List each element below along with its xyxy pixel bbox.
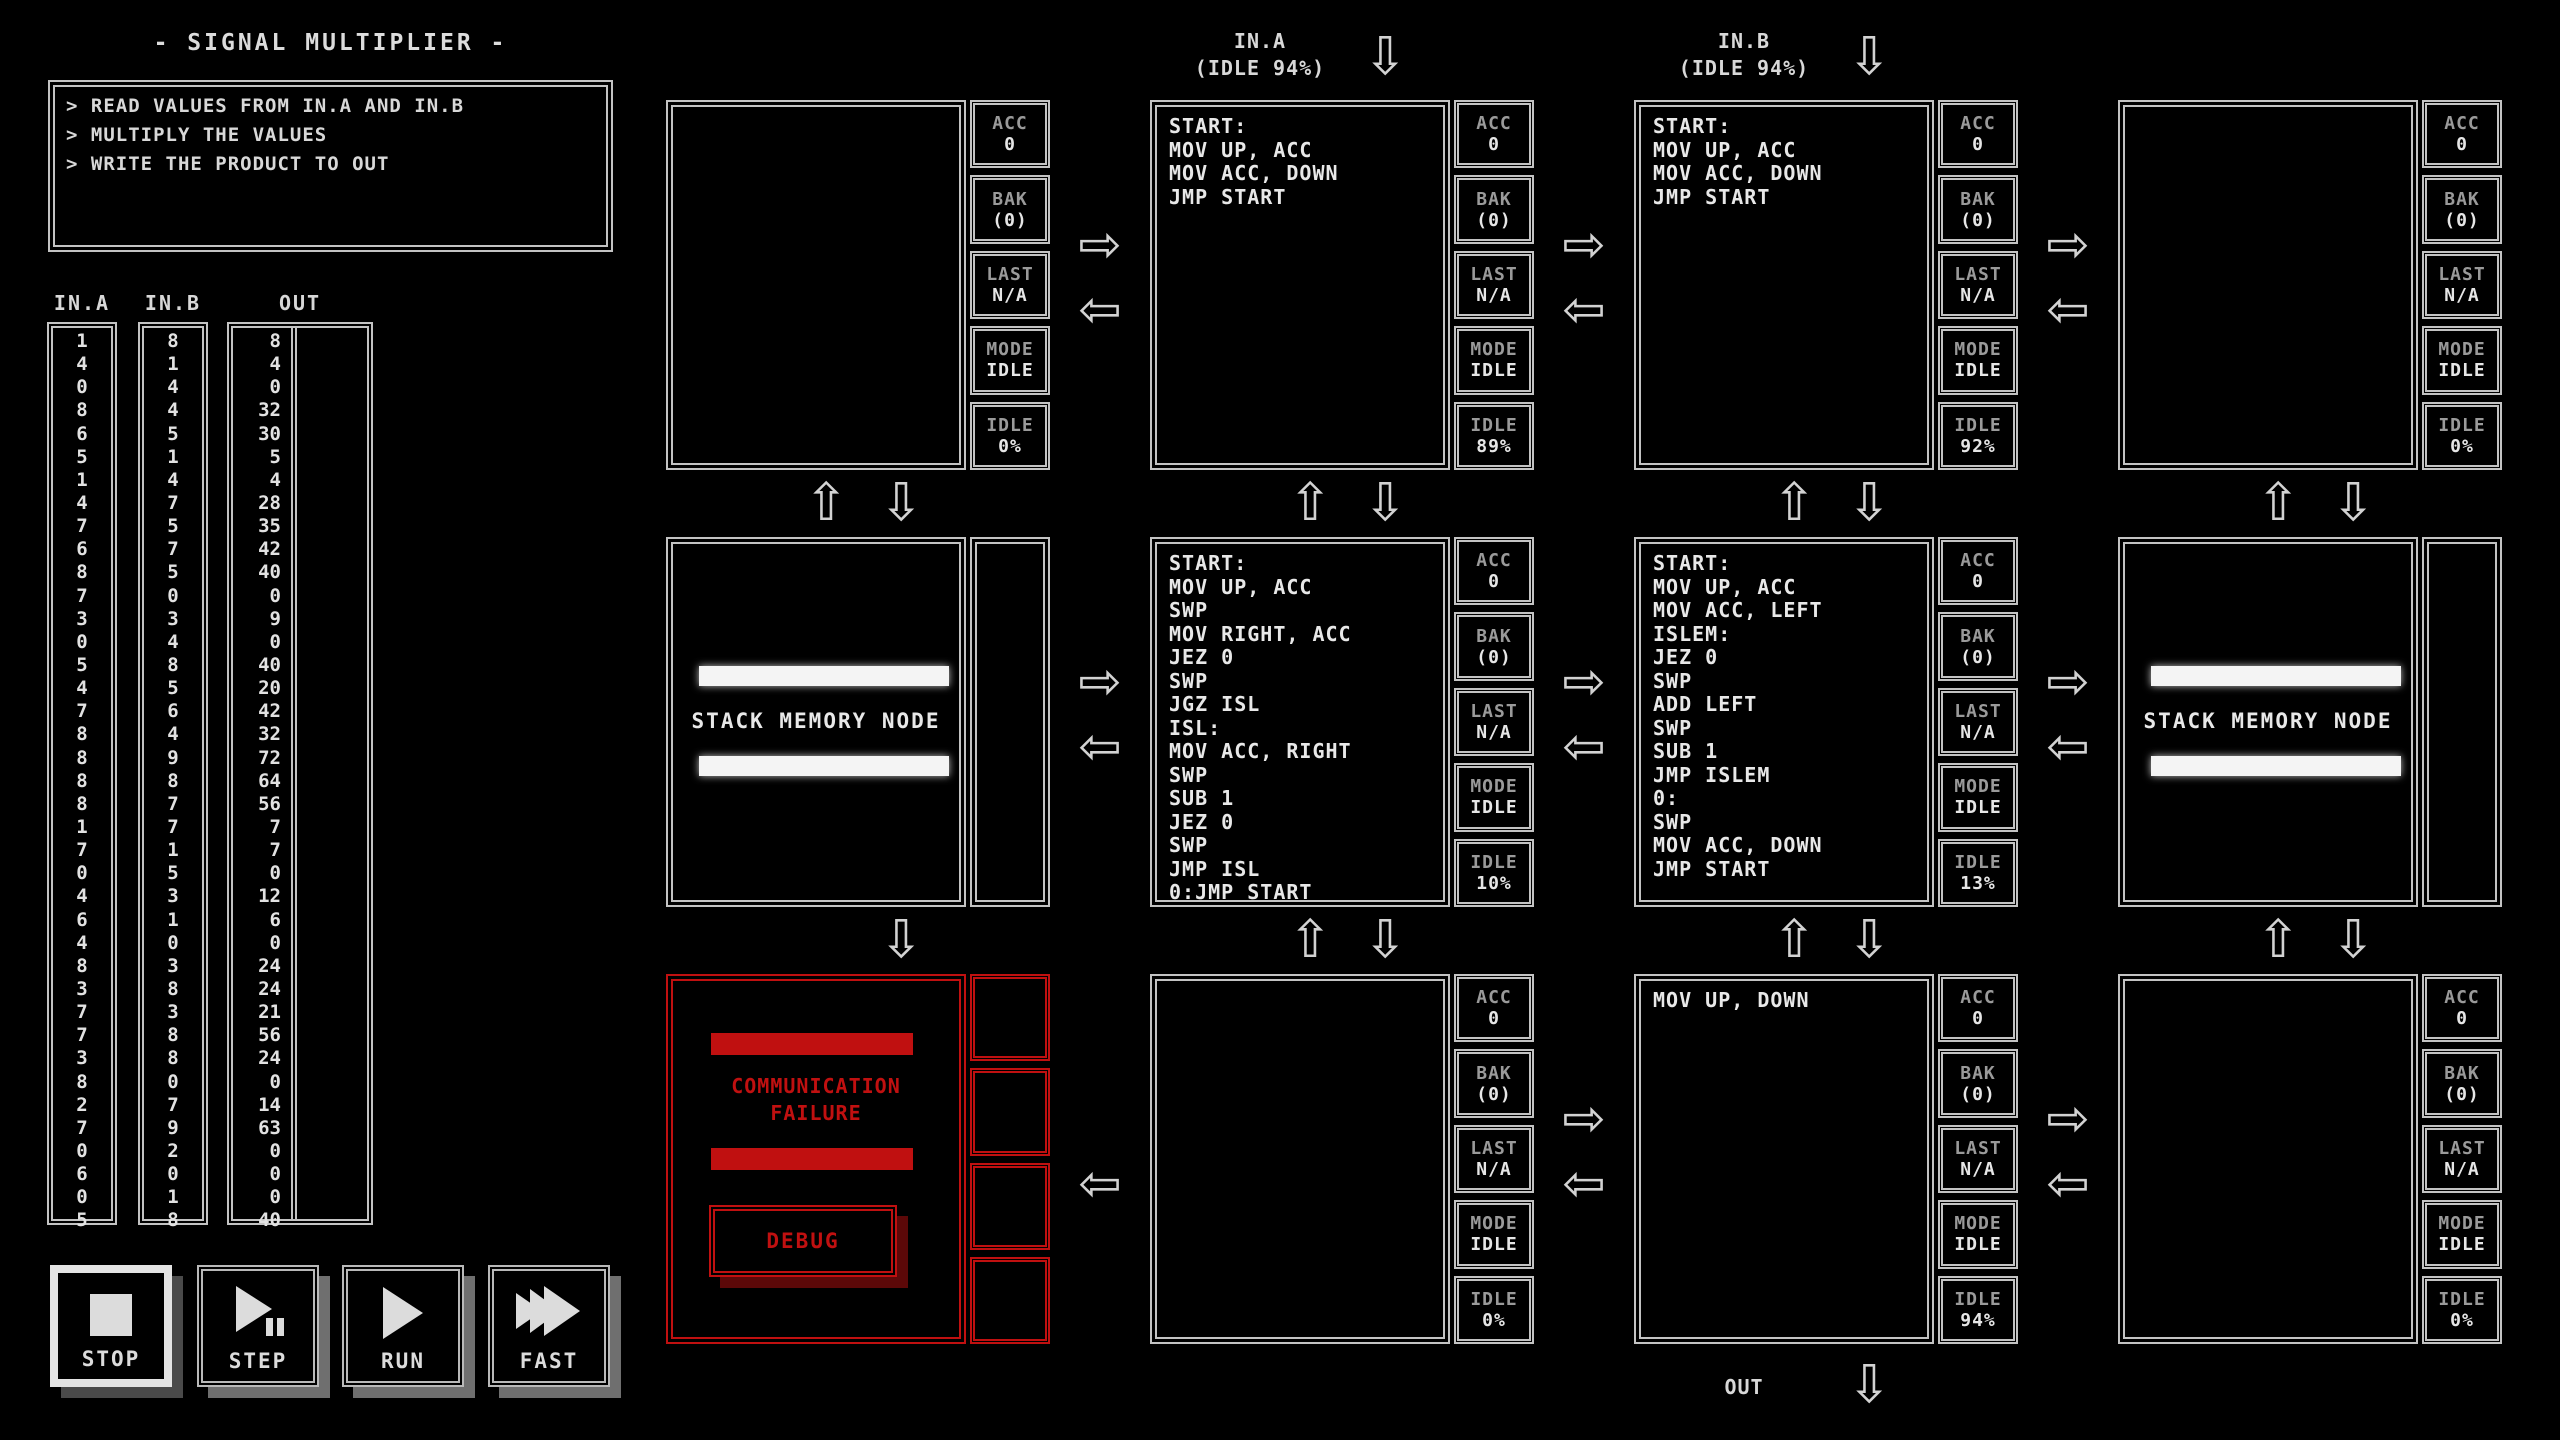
last-box: LASTN/A xyxy=(1454,1125,1534,1193)
bak-box: BAK(0) xyxy=(1454,1049,1534,1117)
node-r3c2: ACC0 BAK(0) LASTN/A MODEIDLE IDLE0% xyxy=(1150,974,1534,1344)
bak-box: BAK(0) xyxy=(2422,1049,2502,1117)
last-box: LASTN/A xyxy=(2422,251,2502,319)
acc-box: ACC0 xyxy=(1938,100,2018,168)
acc-box: ACC0 xyxy=(1454,537,1534,605)
bak-box: BAK(0) xyxy=(1938,175,2018,243)
arrow-down-icon: ⇩ xyxy=(879,914,923,966)
idle-box: IDLE10% xyxy=(1454,839,1534,907)
last-box: LASTN/A xyxy=(1938,688,2018,756)
failure-sidebar-box xyxy=(970,1068,1050,1155)
mode-box: MODEIDLE xyxy=(1938,763,2018,831)
idle-box: IDLE0% xyxy=(2422,402,2502,470)
mode-box: MODEIDLE xyxy=(1454,763,1534,831)
last-box: LASTN/A xyxy=(970,251,1050,319)
arrow-down-icon: ⇩ xyxy=(2331,914,2375,966)
mode-box: MODEIDLE xyxy=(2422,1200,2502,1268)
fast-button-label: FAST xyxy=(494,1349,604,1373)
arrow-down-icon: ⇩ xyxy=(1363,31,1407,83)
idle-box: IDLE94% xyxy=(1938,1276,2018,1344)
stack-memory-panel: STACK MEMORY NODE xyxy=(666,537,966,907)
in-a-values: 140865147687305478888170464837738270605 xyxy=(47,330,117,1232)
arrow-down-icon: ⇩ xyxy=(1847,1359,1891,1411)
last-box: LASTN/A xyxy=(2422,1125,2502,1193)
node-r1c2-code-editor[interactable]: START: MOV UP, ACC MOV ACC, DOWN JMP STA… xyxy=(1150,100,1450,470)
arrow-right-icon: ⇨ xyxy=(1078,219,1122,271)
node-r3c1-communication-failure: COMMUNICATION FAILURE DEBUG xyxy=(666,974,1050,1344)
node-r2c3-code-editor[interactable]: START: MOV UP, ACC MOV ACC, LEFT ISLEM: … xyxy=(1634,537,1934,907)
stop-button[interactable]: STOP xyxy=(50,1265,172,1387)
node-r3c3-code-editor[interactable]: MOV UP, DOWN xyxy=(1634,974,1934,1344)
bak-box: BAK(0) xyxy=(1938,612,2018,680)
arrow-down-icon: ⇩ xyxy=(1363,477,1407,529)
bak-box: BAK(0) xyxy=(1454,612,1534,680)
failure-message: COMMUNICATION FAILURE xyxy=(673,1073,959,1127)
acc-box: ACC0 xyxy=(970,100,1050,168)
failure-panel: COMMUNICATION FAILURE DEBUG xyxy=(666,974,966,1344)
node-r2c2-code-editor[interactable]: START: MOV UP, ACC SWP MOV RIGHT, ACC JE… xyxy=(1150,537,1450,907)
arrow-up-icon: ⇧ xyxy=(1772,477,1816,529)
arrow-left-icon: ⇦ xyxy=(1078,284,1122,336)
stack-memory-panel: STACK MEMORY NODE xyxy=(2118,537,2418,907)
acc-box: ACC0 xyxy=(2422,100,2502,168)
in-b-values: 814451475750348564987715310383880792018 xyxy=(138,330,208,1232)
bak-box: BAK(0) xyxy=(1454,175,1534,243)
arrow-right-icon: ⇨ xyxy=(2046,219,2090,271)
failure-sidebar-box xyxy=(970,1163,1050,1250)
last-box: LASTN/A xyxy=(1938,1125,2018,1193)
run-button[interactable]: RUN xyxy=(342,1265,464,1387)
node-r2c3: START: MOV UP, ACC MOV ACC, LEFT ISLEM: … xyxy=(1634,537,2018,907)
arrow-left-icon: ⇦ xyxy=(1562,1158,1606,1210)
debug-button[interactable]: DEBUG xyxy=(709,1205,897,1277)
out-expected-values: 8403230542835424009040204232726456770126… xyxy=(227,330,291,1232)
arrow-right-icon: ⇨ xyxy=(1562,1093,1606,1145)
node-r3c3: MOV UP, DOWN ACC0 BAK(0) LASTN/A MODEIDL… xyxy=(1634,974,2018,1344)
idle-box: IDLE92% xyxy=(1938,402,2018,470)
node-r1c4-code-editor[interactable] xyxy=(2118,100,2418,470)
bak-box: BAK(0) xyxy=(1938,1049,2018,1117)
stop-button-label: STOP xyxy=(58,1347,164,1371)
node-r1c1-code-editor[interactable] xyxy=(666,100,966,470)
arrow-down-icon: ⇩ xyxy=(879,477,923,529)
stack-memory-label: STACK MEMORY NODE xyxy=(673,710,959,734)
mode-box: MODEIDLE xyxy=(1938,326,2018,394)
node-r1c1: ACC0 BAK(0) LASTN/A MODEIDLE IDLE0% xyxy=(666,100,1050,470)
acc-box: ACC0 xyxy=(1454,974,1534,1042)
run-button-label: RUN xyxy=(348,1349,458,1373)
failure-sidebar-box xyxy=(970,974,1050,1061)
failure-bar xyxy=(711,1033,913,1055)
acc-box: ACC0 xyxy=(1938,974,2018,1042)
arrow-right-icon: ⇨ xyxy=(2046,656,2090,708)
last-box: LASTN/A xyxy=(1454,688,1534,756)
arrow-up-icon: ⇧ xyxy=(1288,914,1332,966)
failure-bar xyxy=(711,1148,913,1170)
in-a-header: IN.A xyxy=(47,291,117,315)
mode-box: MODEIDLE xyxy=(1938,1200,2018,1268)
node-r2c1-stack-memory: STACK MEMORY NODE xyxy=(666,537,1050,907)
acc-box: ACC0 xyxy=(1454,100,1534,168)
arrow-up-icon: ⇧ xyxy=(2256,477,2300,529)
in-b-port-label: IN.B(IDLE 94%) xyxy=(1634,28,1854,82)
bak-box: BAK(0) xyxy=(2422,175,2502,243)
step-button[interactable]: STEP xyxy=(197,1265,319,1387)
arrow-down-icon: ⇩ xyxy=(2331,477,2375,529)
arrow-down-icon: ⇩ xyxy=(1847,31,1891,83)
arrow-right-icon: ⇨ xyxy=(1562,219,1606,271)
arrow-left-icon: ⇦ xyxy=(1562,721,1606,773)
arrow-left-icon: ⇦ xyxy=(2046,721,2090,773)
idle-box: IDLE0% xyxy=(970,402,1050,470)
node-r1c4: ACC0 BAK(0) LASTN/A MODEIDLE IDLE0% xyxy=(2118,100,2502,470)
arrow-left-icon: ⇦ xyxy=(1078,721,1122,773)
stop-icon xyxy=(90,1294,132,1336)
node-r2c4-stack-memory: STACK MEMORY NODE xyxy=(2118,537,2502,907)
acc-box: ACC0 xyxy=(1938,537,2018,605)
node-r3c4-code-editor[interactable] xyxy=(2118,974,2418,1344)
stack-bar xyxy=(699,666,949,686)
last-box: LASTN/A xyxy=(1938,251,2018,319)
puzzle-description: > READ VALUES FROM IN.A AND IN.B > MULTI… xyxy=(66,92,606,179)
node-r3c2-code-editor[interactable] xyxy=(1150,974,1450,1344)
arrow-up-icon: ⇧ xyxy=(2256,914,2300,966)
stack-bar xyxy=(699,756,949,776)
tis100-screen: - SIGNAL MULTIPLIER - > READ VALUES FROM… xyxy=(0,0,2560,1440)
bak-box: BAK(0) xyxy=(970,175,1050,243)
stack-bar xyxy=(2151,756,2401,776)
mode-box: MODEIDLE xyxy=(970,326,1050,394)
arrow-up-icon: ⇧ xyxy=(1288,477,1332,529)
arrow-left-icon: ⇦ xyxy=(1078,1158,1122,1210)
idle-box: IDLE0% xyxy=(1454,1276,1534,1344)
mode-box: MODEIDLE xyxy=(1454,1200,1534,1268)
arrow-right-icon: ⇨ xyxy=(1078,656,1122,708)
node-r2c2: START: MOV UP, ACC SWP MOV RIGHT, ACC JE… xyxy=(1150,537,1534,907)
out-port-label: OUT xyxy=(1634,1374,1854,1401)
step-button-label: STEP xyxy=(203,1349,313,1373)
last-box: LASTN/A xyxy=(1454,251,1534,319)
run-icon xyxy=(383,1287,423,1339)
fast-button[interactable]: FAST xyxy=(488,1265,610,1387)
in-b-header: IN.B xyxy=(138,291,208,315)
idle-box: IDLE89% xyxy=(1454,402,1534,470)
stack-bar xyxy=(2151,666,2401,686)
arrow-down-icon: ⇩ xyxy=(1847,477,1891,529)
in-a-port-label: IN.A(IDLE 94%) xyxy=(1150,28,1370,82)
step-icon xyxy=(230,1284,286,1342)
out-header: OUT xyxy=(227,291,373,315)
arrow-left-icon: ⇦ xyxy=(2046,1158,2090,1210)
acc-box: ACC0 xyxy=(2422,974,2502,1042)
arrow-left-icon: ⇦ xyxy=(2046,284,2090,336)
stack-memory-sidebar xyxy=(2422,537,2502,907)
arrow-left-icon: ⇦ xyxy=(1562,284,1606,336)
node-r1c2: START: MOV UP, ACC MOV ACC, DOWN JMP STA… xyxy=(1150,100,1534,470)
stack-memory-label: STACK MEMORY NODE xyxy=(2125,710,2411,734)
arrow-down-icon: ⇩ xyxy=(1847,914,1891,966)
out-column-divider xyxy=(291,328,297,1219)
failure-sidebar xyxy=(970,974,1050,1344)
arrow-right-icon: ⇨ xyxy=(2046,1093,2090,1145)
mode-box: MODEIDLE xyxy=(2422,326,2502,394)
arrow-up-icon: ⇧ xyxy=(804,477,848,529)
node-r1c3-code-editor[interactable]: START: MOV UP, ACC MOV ACC, DOWN JMP STA… xyxy=(1634,100,1934,470)
fast-icon xyxy=(514,1285,584,1341)
arrow-up-icon: ⇧ xyxy=(1772,914,1816,966)
puzzle-title: - SIGNAL MULTIPLIER - xyxy=(48,30,613,56)
arrow-down-icon: ⇩ xyxy=(1363,914,1407,966)
stack-memory-sidebar xyxy=(970,537,1050,907)
arrow-right-icon: ⇨ xyxy=(1562,656,1606,708)
idle-box: IDLE0% xyxy=(2422,1276,2502,1344)
node-r3c4: ACC0 BAK(0) LASTN/A MODEIDLE IDLE0% xyxy=(2118,974,2502,1344)
failure-sidebar-box xyxy=(970,1257,1050,1344)
mode-box: MODEIDLE xyxy=(1454,326,1534,394)
idle-box: IDLE13% xyxy=(1938,839,2018,907)
node-r1c3: START: MOV UP, ACC MOV ACC, DOWN JMP STA… xyxy=(1634,100,2018,470)
